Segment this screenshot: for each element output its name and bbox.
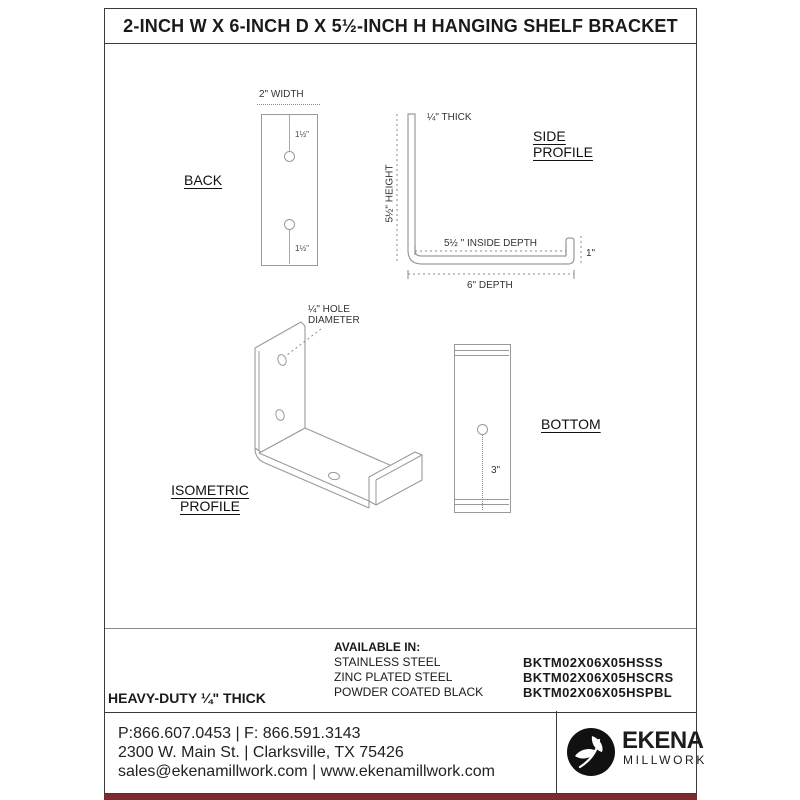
spec-sheet-page: 2-INCH W X 6-INCH D X 5½-INCH H HANGING … [0, 0, 800, 800]
spec-sheet: 2-INCH W X 6-INCH D X 5½-INCH H HANGING … [104, 8, 697, 794]
isometric-label: ISOMETRIC PROFILE [163, 482, 257, 514]
contact-phone-fax: P:866.607.0453 | F: 866.591.3143 [118, 724, 556, 743]
contact-email-web: sales@ekenamillwork.com | www.ekenamillw… [118, 762, 556, 781]
iso-hole-dim-line1: ¼" HOLE [308, 304, 360, 315]
side-profile-label: SIDE PROFILE [533, 128, 593, 160]
specs-band: HEAVY-DUTY ¼" THICK AVAILABLE IN: STAINL… [105, 628, 696, 713]
back-hole-bottom-dim: 1½" [295, 244, 309, 253]
bottom-view-label: BOTTOM [541, 416, 601, 432]
contact-info: P:866.607.0453 | F: 866.591.3143 2300 W.… [105, 711, 557, 793]
side-depth-dim: 6" DEPTH [467, 280, 513, 291]
back-hole-bottom-leader [289, 230, 290, 264]
brand-subtitle: MILLWORK [623, 753, 707, 767]
bottom-hole [477, 424, 488, 435]
side-thick-dim: ¼" THICK [427, 112, 472, 123]
contact-address: 2300 W. Main St. | Clarksville, TX 75426 [118, 743, 556, 762]
bottom-top-line1 [455, 350, 509, 351]
back-width-dimension: 2" WIDTH [259, 89, 304, 100]
finish-stainless: STAINLESS STEEL [334, 655, 440, 669]
side-lip-dim: 1" [586, 248, 595, 259]
side-height-dim: 5½" HEIGHT [385, 165, 396, 223]
footer: P:866.607.0453 | F: 866.591.3143 2300 W.… [105, 711, 696, 793]
brand-accent-bar [104, 794, 697, 800]
back-hole-top-leader [289, 114, 290, 152]
side-label-line1: SIDE [533, 128, 593, 144]
iso-hole-dim-line2: DIAMETER [308, 315, 360, 326]
side-label-line2: PROFILE [533, 144, 593, 160]
bottom-hole-dim-line [482, 435, 483, 510]
back-hole-top [284, 151, 295, 162]
back-hole-top-dim: 1½" [295, 130, 309, 139]
available-in-label: AVAILABLE IN: [334, 640, 420, 654]
sku-powder: BKTM02X06X05HSPBL [523, 685, 672, 700]
iso-label-line1: ISOMETRIC [163, 482, 257, 498]
sku-stainless: BKTM02X06X05HSSS [523, 655, 663, 670]
side-inside-depth-dim: 5½ " INSIDE DEPTH [444, 238, 537, 249]
finish-zinc: ZINC PLATED STEEL [334, 670, 452, 684]
ekena-logo-icon [566, 727, 616, 777]
brand-name: EKENA [622, 727, 704, 755]
iso-label-line2: PROFILE [163, 498, 257, 514]
page-title: 2-INCH W X 6-INCH D X 5½-INCH H HANGING … [105, 9, 696, 44]
iso-plate [255, 322, 305, 452]
brand-logo: EKENA MILLWORK [558, 711, 696, 793]
iso-hole-dim: ¼" HOLE DIAMETER [308, 304, 360, 326]
back-hole-bottom [284, 219, 295, 230]
sku-zinc: BKTM02X06X05HSCRS [523, 670, 674, 685]
bottom-top-line2 [455, 355, 509, 356]
back-view-label: BACK [184, 172, 222, 188]
back-width-dim-line [257, 104, 320, 105]
finish-powder: POWDER COATED BLACK [334, 685, 483, 699]
bottom-hole-dim: 3" [491, 465, 500, 476]
heavy-duty-note: HEAVY-DUTY ¼" THICK [108, 690, 266, 706]
